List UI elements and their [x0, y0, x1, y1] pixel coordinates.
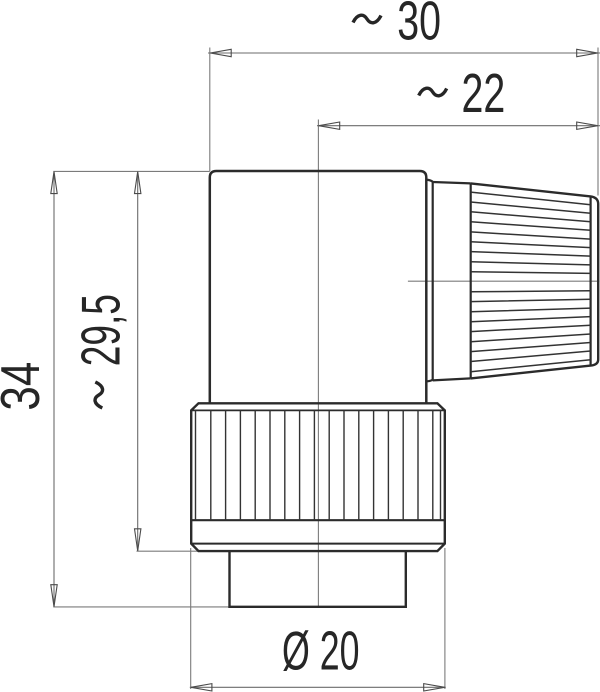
- svg-text:34: 34: [0, 362, 51, 411]
- svg-text:Ø 20: Ø 20: [282, 620, 359, 682]
- svg-text:29,5: 29,5: [70, 294, 131, 366]
- svg-text:22: 22: [462, 64, 506, 125]
- svg-text:30: 30: [397, 0, 441, 52]
